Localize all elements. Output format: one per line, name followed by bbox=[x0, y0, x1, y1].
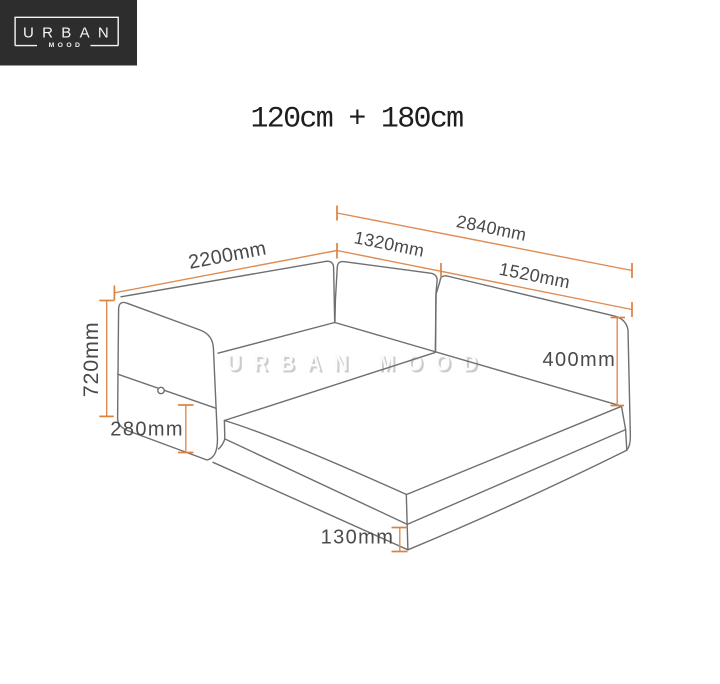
svg-text:URBAN MOOD: URBAN MOOD bbox=[227, 349, 490, 376]
svg-text:720mm: 720mm bbox=[79, 322, 103, 398]
svg-text:MOOD: MOOD bbox=[49, 42, 84, 49]
svg-text:2200mm: 2200mm bbox=[187, 237, 268, 273]
svg-text:280mm: 280mm bbox=[110, 418, 184, 440]
svg-text:URBAN: URBAN bbox=[23, 25, 117, 42]
svg-text:2840mm: 2840mm bbox=[455, 211, 529, 245]
svg-text:120cm + 180cm: 120cm + 180cm bbox=[251, 103, 464, 137]
svg-text:130mm: 130mm bbox=[321, 527, 395, 549]
svg-text:1520mm: 1520mm bbox=[497, 259, 571, 293]
svg-text:400mm: 400mm bbox=[542, 349, 616, 371]
